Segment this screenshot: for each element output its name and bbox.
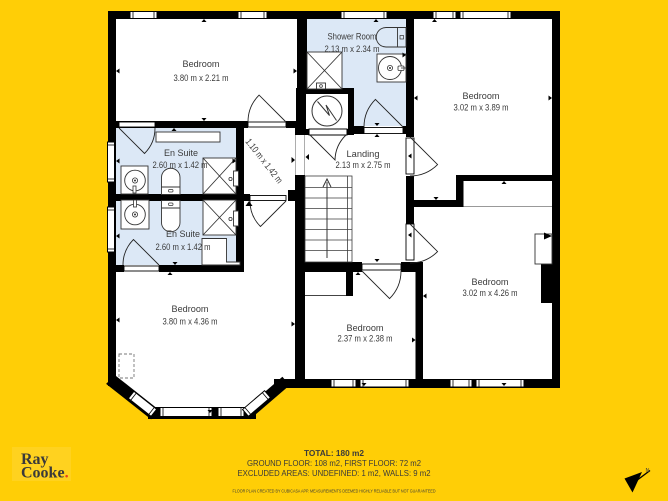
svg-text:Landing: Landing [347, 149, 380, 160]
svg-text:3.02 m x 3.89 m: 3.02 m x 3.89 m [454, 103, 509, 114]
svg-text:TOTAL: 180 m2: TOTAL: 180 m2 [304, 448, 364, 458]
svg-text:Bedroom: Bedroom [172, 304, 209, 315]
svg-text:2.60 m x 1.42 m: 2.60 m x 1.42 m [156, 242, 211, 253]
svg-text:2.60 m x 1.42 m: 2.60 m x 1.42 m [153, 160, 208, 171]
svg-text:FLOOR PLAN CREATED BY CUBICASA: FLOOR PLAN CREATED BY CUBICASA APP. MEAS… [233, 489, 437, 494]
svg-text:En Suite: En Suite [164, 148, 198, 159]
svg-text:En Suite: En Suite [166, 229, 200, 240]
svg-text:3.80 m x 4.36 m: 3.80 m x 4.36 m [163, 317, 218, 328]
svg-text:3.02 m x 4.26 m: 3.02 m x 4.26 m [463, 288, 518, 299]
svg-text:2.13 m x 2.34 m: 2.13 m x 2.34 m [325, 44, 380, 55]
svg-text:Bedroom: Bedroom [183, 59, 220, 70]
svg-text:2.13 m x 2.75 m: 2.13 m x 2.75 m [336, 160, 391, 171]
svg-text:Bedroom: Bedroom [463, 91, 500, 102]
svg-text:Cooke.: Cooke. [21, 465, 69, 482]
svg-text:N: N [646, 468, 650, 474]
svg-text:3.80 m x 2.21 m: 3.80 m x 2.21 m [174, 73, 229, 84]
svg-text:Bedroom: Bedroom [472, 277, 509, 288]
svg-text:2.37 m x 2.38 m: 2.37 m x 2.38 m [338, 334, 393, 345]
svg-text:Bedroom: Bedroom [347, 323, 384, 334]
svg-text:GROUND FLOOR: 108 m2, FIRST FL: GROUND FLOOR: 108 m2, FIRST FLOOR: 72 m2 [247, 458, 421, 468]
svg-text:EXCLUDED AREAS: UNDEFINED: 1 m: EXCLUDED AREAS: UNDEFINED: 1 m2, WALLS: … [238, 468, 431, 478]
svg-text:Shower Room: Shower Room [328, 32, 377, 43]
